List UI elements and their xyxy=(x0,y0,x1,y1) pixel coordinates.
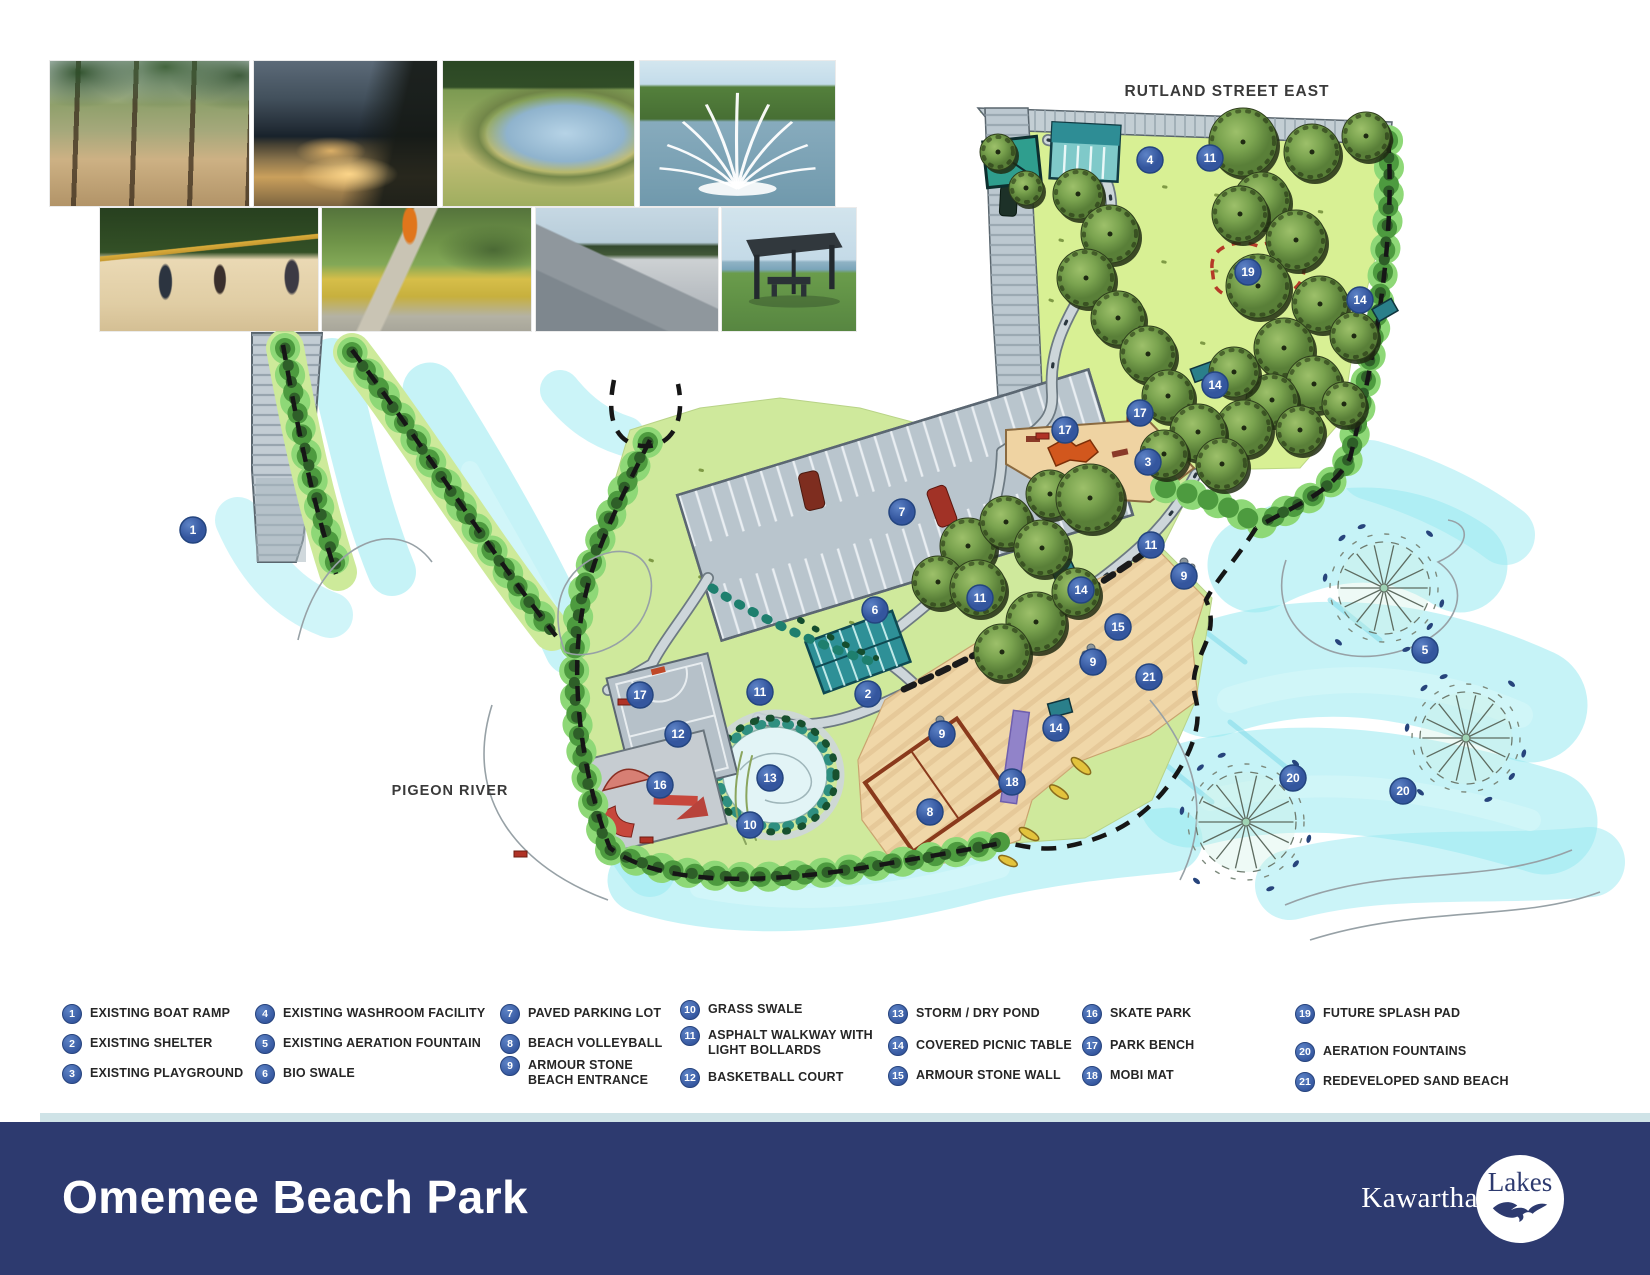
svg-text:2: 2 xyxy=(865,687,872,701)
map-marker-13: 13 xyxy=(757,765,783,791)
map-marker-7: 7 xyxy=(889,499,915,525)
svg-text:11: 11 xyxy=(974,591,987,605)
map-marker-9: 9 xyxy=(929,721,955,747)
svg-text:13: 13 xyxy=(763,771,777,785)
title-bar: Omemee Beach Park Kawartha Lakes xyxy=(0,1122,1650,1275)
map-marker-11: 11 xyxy=(1138,532,1164,558)
fountain-spray-graphic xyxy=(640,61,835,206)
svg-text:19: 19 xyxy=(1241,265,1255,279)
map-marker-19: 19 xyxy=(1235,259,1261,285)
svg-text:9: 9 xyxy=(939,727,946,741)
svg-text:18: 18 xyxy=(1005,775,1019,789)
map-marker-9: 9 xyxy=(1080,649,1106,675)
svg-text:17: 17 xyxy=(1058,423,1072,437)
svg-text:5: 5 xyxy=(1422,643,1429,657)
svg-text:11: 11 xyxy=(754,685,767,699)
svg-text:16: 16 xyxy=(653,778,667,792)
map-marker-6: 6 xyxy=(862,597,888,623)
skate-park-photo xyxy=(536,208,718,331)
logo-word-kawartha: Kawartha xyxy=(1361,1182,1478,1215)
map-marker-14: 14 xyxy=(1043,715,1069,741)
map-marker-17: 17 xyxy=(627,682,653,708)
beach-volleyball-photo xyxy=(100,208,318,331)
svg-text:14: 14 xyxy=(1353,293,1367,307)
svg-text:6: 6 xyxy=(872,603,879,617)
map-marker-17: 17 xyxy=(1052,417,1078,443)
map-marker-4: 4 xyxy=(1137,147,1163,173)
svg-text:4: 4 xyxy=(1147,153,1154,167)
river-label: PIGEON RIVER xyxy=(392,783,509,799)
map-marker-18: 18 xyxy=(999,769,1025,795)
map-marker-2: 2 xyxy=(855,681,881,707)
park-masterplan-page: { "map": { "street_label": "RUTLAND STRE… xyxy=(0,0,1650,1275)
map-marker-12: 12 xyxy=(665,721,691,747)
svg-text:9: 9 xyxy=(1181,569,1188,583)
svg-text:21: 21 xyxy=(1142,670,1156,684)
map-marker-14: 14 xyxy=(1068,577,1094,603)
svg-text:7: 7 xyxy=(899,505,906,519)
map-marker-11: 11 xyxy=(967,585,993,611)
svg-text:14: 14 xyxy=(1074,583,1088,597)
street-label: RUTLAND STREET EAST xyxy=(1125,83,1330,100)
beach-forest-trail-photo xyxy=(50,61,249,206)
accent-strip xyxy=(40,1113,1650,1122)
map-marker-11: 11 xyxy=(1197,145,1223,171)
map-marker-1: 1 xyxy=(180,517,206,543)
eagle-icon xyxy=(1491,1198,1549,1224)
logo-circle: Lakes xyxy=(1476,1155,1564,1243)
svg-text:20: 20 xyxy=(1286,771,1300,785)
map-marker-20: 20 xyxy=(1280,765,1306,791)
picnic-shelter-photo xyxy=(722,208,856,331)
page-title: Omemee Beach Park xyxy=(62,1169,528,1223)
svg-text:12: 12 xyxy=(671,727,685,741)
map-marker-20: 20 xyxy=(1390,778,1416,804)
svg-text:14: 14 xyxy=(1208,378,1222,392)
svg-text:14: 14 xyxy=(1049,721,1063,735)
svg-text:9: 9 xyxy=(1090,655,1097,669)
svg-text:15: 15 xyxy=(1111,620,1125,634)
map-marker-11: 11 xyxy=(747,679,773,705)
lake-aeration-fountain-photo xyxy=(640,61,835,206)
kawartha-lakes-logo: Kawartha Lakes xyxy=(1361,1155,1564,1243)
svg-text:17: 17 xyxy=(633,688,647,702)
map-marker-3: 3 xyxy=(1135,449,1161,475)
map-marker-14: 14 xyxy=(1202,372,1228,398)
svg-text:10: 10 xyxy=(743,818,757,832)
map-marker-17: 17 xyxy=(1127,400,1153,426)
shelter-silhouette-graphic xyxy=(722,208,856,331)
map-marker-16: 16 xyxy=(647,772,673,798)
svg-text:11: 11 xyxy=(1145,538,1158,552)
svg-text:8: 8 xyxy=(927,805,934,819)
pond-grass-swale-photo xyxy=(443,61,634,206)
map-marker-5: 5 xyxy=(1412,637,1438,663)
logo-word-lakes: Lakes xyxy=(1488,1167,1552,1198)
svg-text:20: 20 xyxy=(1396,784,1410,798)
map-marker-14: 14 xyxy=(1347,287,1373,313)
svg-text:1: 1 xyxy=(190,523,197,537)
svg-text:3: 3 xyxy=(1145,455,1152,469)
svg-text:11: 11 xyxy=(1204,151,1217,165)
map-marker-9: 9 xyxy=(1171,563,1197,589)
lit-pathway-dusk-photo xyxy=(254,61,437,206)
map-marker-15: 15 xyxy=(1105,614,1131,640)
map-marker-21: 21 xyxy=(1136,664,1162,690)
playground-court-photo xyxy=(322,208,531,331)
map-marker-10: 10 xyxy=(737,812,763,838)
map-marker-8: 8 xyxy=(917,799,943,825)
svg-text:17: 17 xyxy=(1133,406,1147,420)
